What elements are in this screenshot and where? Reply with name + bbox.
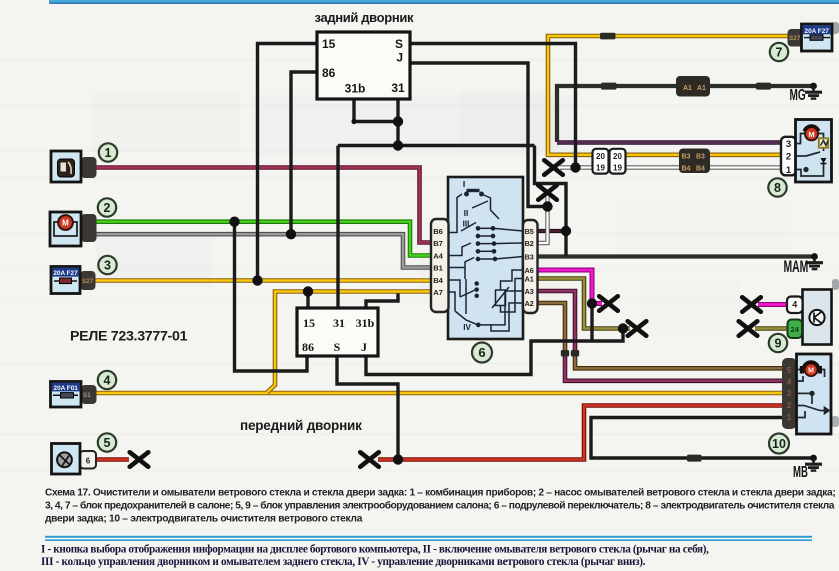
svg-text:MB: MB [793,463,808,481]
svg-text:1: 1 [105,146,112,160]
svg-text:86: 86 [302,340,314,354]
svg-text:2: 2 [104,201,111,215]
svg-text:B4: B4 [682,166,691,173]
svg-text:3: 3 [104,259,111,273]
svg-text:6: 6 [86,456,91,465]
svg-text:20: 20 [596,152,605,161]
svg-text:S1: S1 [83,392,91,399]
svg-text:24: 24 [791,325,800,334]
svg-text:3: 3 [786,139,791,150]
svg-text:1: 1 [787,413,792,422]
svg-text:6: 6 [478,345,485,360]
svg-text:7: 7 [776,46,783,60]
svg-text:B3: B3 [696,154,705,161]
svg-text:S: S [334,340,341,354]
svg-text:Схема 17. Очистители и омывате: Схема 17. Очистители и омыватели ветрово… [45,487,835,499]
svg-text:M: M [808,368,814,375]
svg-text:A1: A1 [697,85,706,92]
svg-text:20A F01: 20A F01 [54,385,79,392]
svg-text:4: 4 [104,374,111,388]
svg-text:задний дворник: задний дворник [315,10,414,25]
svg-text:A1: A1 [525,275,534,284]
svg-text:2: 2 [786,152,791,163]
svg-text:S: S [395,37,403,51]
svg-text:31b: 31b [345,82,366,96]
svg-text:B3: B3 [525,253,534,262]
svg-text:M: M [62,219,69,228]
svg-text:B3: B3 [682,154,691,161]
svg-text:31b: 31b [356,316,375,330]
svg-text:9: 9 [775,337,782,351]
svg-text:15: 15 [303,316,315,330]
svg-text:MAM: MAM [784,258,809,276]
svg-text:19: 19 [596,164,605,173]
svg-text:8: 8 [774,181,781,195]
svg-text:2: 2 [787,401,792,410]
svg-text:РЕЛЕ 723.3777-01: РЕЛЕ 723.3777-01 [70,329,188,345]
svg-text:передний дворник: передний дворник [240,418,362,433]
svg-text:B1: B1 [433,264,443,273]
svg-text:5: 5 [104,436,111,450]
svg-text:3, 4, 7 – блок предохранителей: 3, 4, 7 – блок предохранителей в салоне;… [45,500,835,512]
svg-text:M: M [808,130,814,139]
svg-text:19: 19 [613,164,622,173]
svg-text:B5: B5 [525,227,534,236]
svg-text:A4: A4 [433,252,443,261]
svg-text:20A F27: 20A F27 [53,270,78,277]
svg-text:IV: IV [463,323,471,332]
svg-text:B2: B2 [525,239,534,248]
svg-text:III - кольцо управления дворни: III - кольцо управления дворником и омыв… [41,556,646,568]
svg-text:S27: S27 [82,278,94,285]
svg-text:31: 31 [333,316,345,330]
svg-text:4: 4 [792,300,797,310]
svg-text:I: I [463,179,465,189]
svg-text:86: 86 [322,66,336,80]
svg-text:A1: A1 [683,85,692,92]
svg-text:31: 31 [391,81,405,95]
svg-text:MG: MG [790,86,806,104]
svg-text:II: II [464,209,468,218]
svg-text:10: 10 [772,437,786,451]
svg-text:B6: B6 [433,227,443,236]
svg-text:I - кнопка выбора отображения: I - кнопка выбора отображения информации… [41,544,709,556]
svg-text:20A F27: 20A F27 [805,28,830,35]
svg-text:A2: A2 [525,299,534,308]
svg-text:J: J [396,51,403,65]
svg-text:B7: B7 [433,239,443,248]
svg-text:1: 1 [786,165,792,176]
svg-text:двери задка; 10 – электродвига: двери задка; 10 – электродвигатель очист… [45,514,363,525]
svg-text:15: 15 [322,37,336,51]
svg-text:S27: S27 [789,35,801,42]
svg-text:A7: A7 [433,288,443,297]
svg-text:4: 4 [787,378,792,387]
svg-text:3: 3 [787,389,792,398]
svg-text:B4: B4 [696,166,705,173]
svg-text:A3: A3 [525,287,534,296]
svg-text:5: 5 [787,366,792,375]
svg-text:20: 20 [613,152,622,161]
svg-text:B4: B4 [433,276,443,285]
svg-text:J: J [361,340,367,354]
